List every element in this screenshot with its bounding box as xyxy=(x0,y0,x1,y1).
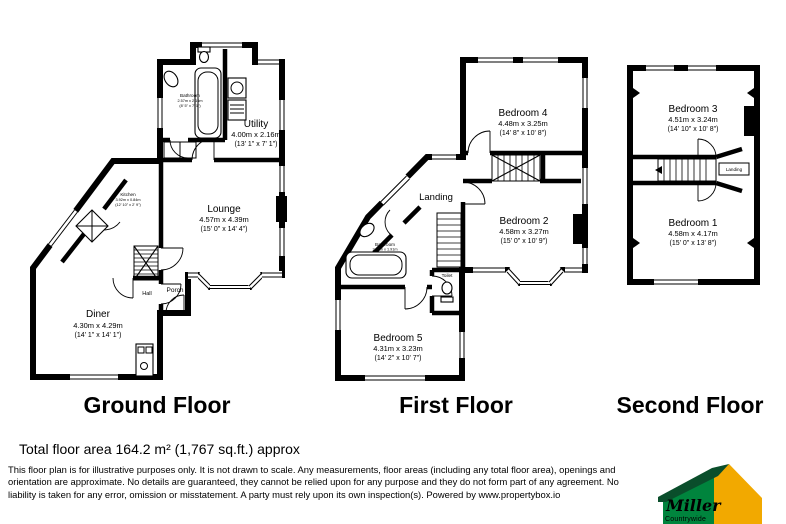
second-floor-windows xyxy=(646,64,716,286)
utility-appliances xyxy=(228,78,246,120)
room-label-kitchen: Kitchen 3.92m x 0.84m (12' 10" x 2' 9") xyxy=(115,192,141,207)
svg-text:(14' 1" x 14' 1"): (14' 1" x 14' 1") xyxy=(75,332,122,339)
first-floor-title: First Floor xyxy=(399,392,513,418)
wc-fixture xyxy=(198,47,210,63)
svg-text:4.48m x 3.25m: 4.48m x 3.25m xyxy=(498,119,548,128)
wall-marker xyxy=(633,88,640,98)
room-label-bathroom: Bathroom 2.06m x 1.91m xyxy=(372,242,397,252)
disclaimer-line: This floor plan is for illustrative purp… xyxy=(8,464,619,476)
svg-text:4.51m x 3.24m: 4.51m x 3.24m xyxy=(668,115,718,124)
svg-text:Bathroom: Bathroom xyxy=(375,242,395,247)
room-label-porch: Porch xyxy=(167,287,184,294)
svg-text:Bedroom 2: Bedroom 2 xyxy=(500,216,549,227)
disclaimer-line: liability is taken for any error, omissi… xyxy=(8,489,619,501)
room-label-bedroom2: Bedroom 2 4.58m x 3.27m (15' 0" x 10' 9"… xyxy=(499,216,549,245)
wall-marker xyxy=(747,88,754,98)
diner-sink-unit xyxy=(136,344,153,376)
svg-text:2.06m x 1.91m: 2.06m x 1.91m xyxy=(372,248,397,252)
floorplan-page: Bathroom 2.57m x 2.16m (8' 5" x 7' 1") U… xyxy=(0,0,786,524)
total-floor-area: Total floor area 164.2 m² (1,767 sq.ft.)… xyxy=(19,441,300,457)
svg-text:Bedroom 1: Bedroom 1 xyxy=(669,218,718,229)
second-floor-stairs xyxy=(655,159,716,181)
wall-marker xyxy=(633,238,640,248)
bathroom-sink-fixture xyxy=(161,69,181,90)
floorplan-drawing: Bathroom 2.57m x 2.16m (8' 5" x 7' 1") U… xyxy=(0,0,786,432)
logo-brand-text: Miller xyxy=(665,496,722,515)
svg-text:(8' 5" x 7' 1"): (8' 5" x 7' 1") xyxy=(179,104,201,108)
room-label-diner: Diner 4.30m x 4.29m (14' 1" x 14' 1") xyxy=(73,309,123,339)
room-label-lounge: Lounge 4.57m x 4.39m (15' 0" x 14' 4") xyxy=(199,204,249,233)
chimney-breast xyxy=(744,106,757,136)
logo-house-side xyxy=(714,464,762,524)
room-label-bedroom1: Bedroom 1 4.58m x 4.17m (15' 0" x 13' 8"… xyxy=(668,218,718,247)
svg-text:4.58m x 3.27m: 4.58m x 3.27m xyxy=(499,227,549,236)
svg-text:(14' 8" x 10' 8"): (14' 8" x 10' 8") xyxy=(500,130,547,137)
chimney-breast xyxy=(276,196,287,222)
svg-text:Lounge: Lounge xyxy=(207,204,241,215)
svg-text:4.57m x 4.39m: 4.57m x 4.39m xyxy=(199,215,249,224)
svg-text:(13' 1" x 7' 1"): (13' 1" x 7' 1") xyxy=(234,141,277,148)
ground-floor-windows xyxy=(49,41,287,381)
bathtub-fixture xyxy=(195,68,221,138)
second-floor-plan: Landing Bedroom 3 4.51m x 3.24m (14' 10"… xyxy=(630,64,757,286)
ground-floor-stairs xyxy=(134,246,158,280)
svg-text:4.30m x 4.29m: 4.30m x 4.29m xyxy=(73,321,123,330)
disclaimer-line: orientation are approximate. No details … xyxy=(8,476,619,488)
room-label-bathroom: Bathroom 2.57m x 2.16m (8' 5" x 7' 1") xyxy=(177,93,202,108)
svg-text:(14' 10" x 10' 8"): (14' 10" x 10' 8") xyxy=(668,126,719,133)
disclaimer: This floor plan is for illustrative purp… xyxy=(8,464,619,501)
svg-text:2.57m x 2.16m: 2.57m x 2.16m xyxy=(177,99,202,103)
room-label-utility: Utility 4.00m x 2.16m (13' 1" x 7' 1") xyxy=(231,119,281,148)
svg-text:(14' 2" x 10' 7"): (14' 2" x 10' 7") xyxy=(375,355,422,362)
chimney-breast xyxy=(573,214,585,244)
first-floor-stairs-up xyxy=(492,155,540,181)
svg-text:Bedroom 4: Bedroom 4 xyxy=(499,108,548,119)
room-label-landing: Landing xyxy=(726,167,743,172)
wc-fixture xyxy=(441,282,453,302)
room-label-toilet: Toilet xyxy=(442,273,453,278)
svg-text:Bedroom 3: Bedroom 3 xyxy=(669,104,718,115)
svg-text:(15' 0" x 14' 4"): (15' 0" x 14' 4") xyxy=(201,226,248,233)
logo-sub-text: Countrywide xyxy=(665,516,706,523)
room-label-landing: Landing xyxy=(419,192,453,203)
first-floor-stairs-down xyxy=(437,213,461,267)
svg-text:Diner: Diner xyxy=(86,309,111,320)
second-floor-doors xyxy=(698,139,716,201)
wall-marker xyxy=(747,238,754,248)
room-label-bedroom4: Bedroom 4 4.48m x 3.25m (14' 8" x 10' 8"… xyxy=(498,108,548,137)
svg-text:(15' 0" x 13' 8"): (15' 0" x 13' 8") xyxy=(670,240,717,247)
room-label-bedroom3: Bedroom 3 4.51m x 3.24m (14' 10" x 10' 8… xyxy=(668,104,719,133)
bathtub-fixture xyxy=(346,252,406,278)
svg-text:(15' 0" x 10' 9"): (15' 0" x 10' 9") xyxy=(501,238,548,245)
room-label-hall: Hall xyxy=(142,291,151,297)
ground-floor-title: Ground Floor xyxy=(84,392,231,418)
svg-text:Bathroom: Bathroom xyxy=(180,93,200,98)
bathroom-sink-fixture xyxy=(357,221,376,240)
ground-floor-plan: Bathroom 2.57m x 2.16m (8' 5" x 7' 1") U… xyxy=(33,41,287,381)
svg-text:4.31m x 3.23m: 4.31m x 3.23m xyxy=(373,344,423,353)
svg-text:4.58m x 4.17m: 4.58m x 4.17m xyxy=(668,229,718,238)
svg-text:4.00m x 2.16m: 4.00m x 2.16m xyxy=(231,130,281,139)
first-floor-plan: Bedroom 4 4.48m x 3.25m (14' 8" x 10' 8"… xyxy=(334,56,589,382)
svg-text:Bedroom 5: Bedroom 5 xyxy=(374,333,423,344)
svg-text:Utility: Utility xyxy=(244,119,268,130)
svg-text:Kitchen: Kitchen xyxy=(120,192,136,197)
miller-countrywide-logo: Miller Countrywide xyxy=(656,461,764,524)
room-label-bedroom5: Bedroom 5 4.31m x 3.23m (14' 2" x 10' 7"… xyxy=(373,333,423,362)
svg-text:3.92m x 0.84m: 3.92m x 0.84m xyxy=(115,198,140,202)
second-floor-title: Second Floor xyxy=(617,392,764,418)
svg-text:(12' 10" x 2' 9"): (12' 10" x 2' 9") xyxy=(115,203,141,207)
